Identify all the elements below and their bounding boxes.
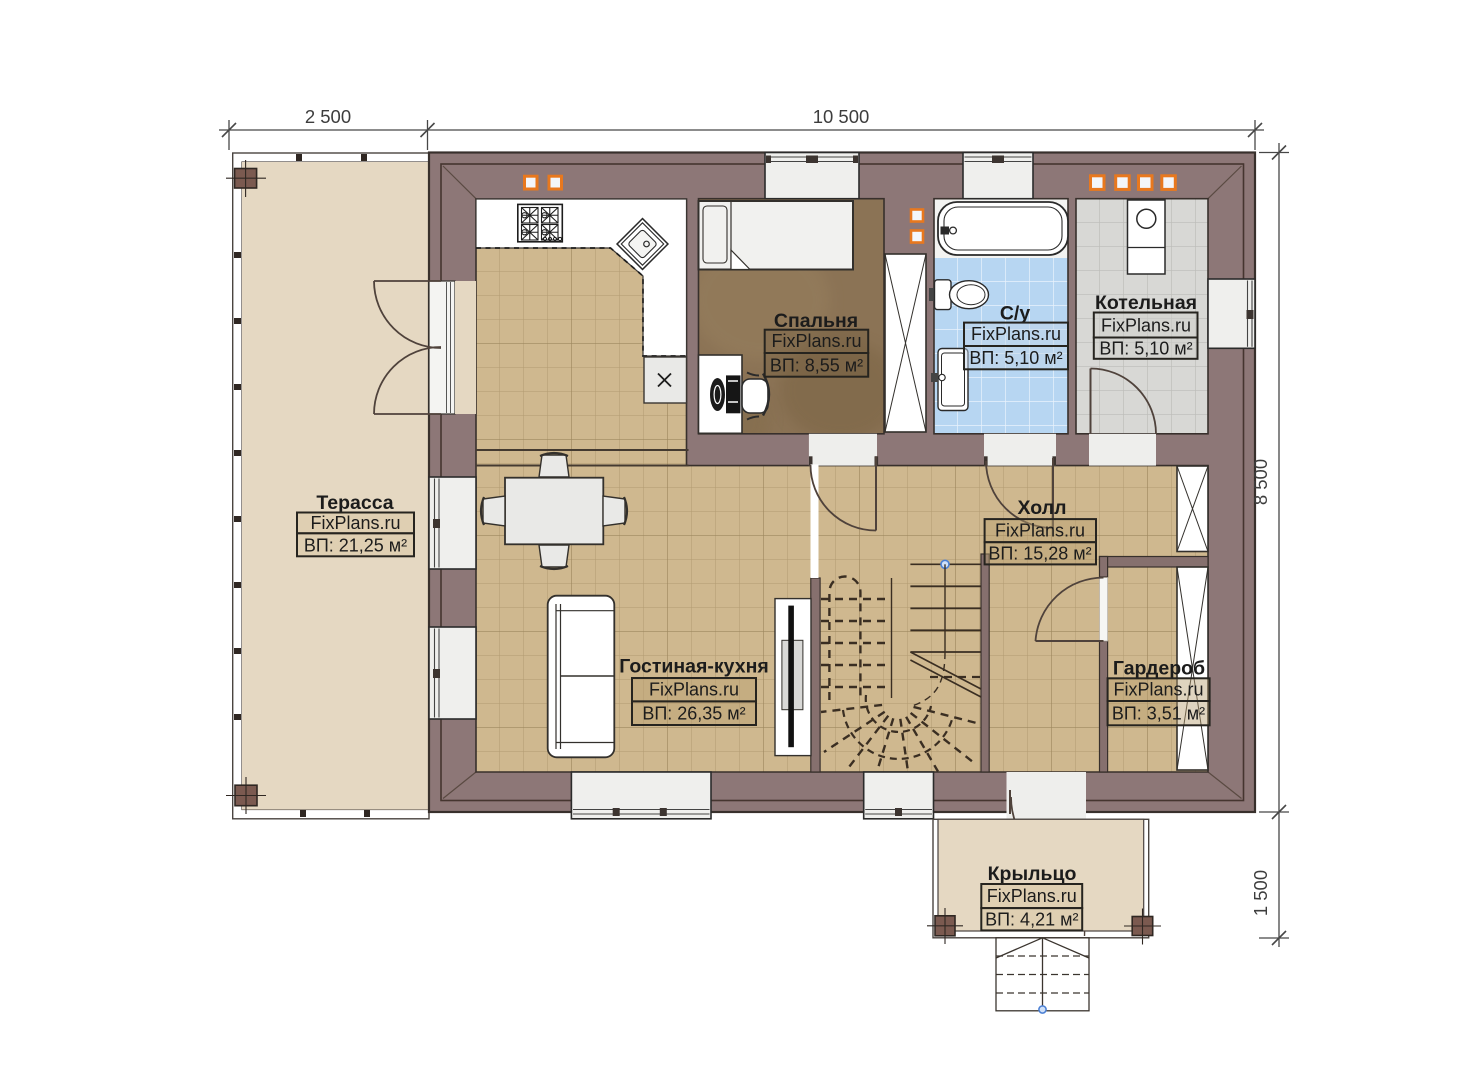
- svg-text:ВП: 21,25 м²: ВП: 21,25 м²: [304, 536, 407, 556]
- svg-text:FixPlans.ru: FixPlans.ru: [771, 331, 861, 351]
- svg-text:Котельная: Котельная: [1095, 292, 1197, 314]
- svg-text:Холл: Холл: [1018, 497, 1067, 519]
- svg-text:1 500: 1 500: [1250, 870, 1271, 916]
- svg-text:Крыльцо: Крыльцо: [988, 863, 1077, 885]
- svg-text:FixPlans.ru: FixPlans.ru: [649, 680, 739, 700]
- svg-text:10 500: 10 500: [813, 106, 870, 127]
- svg-text:ВП: 3,51 м²: ВП: 3,51 м²: [1112, 704, 1205, 724]
- svg-text:FixPlans.ru: FixPlans.ru: [987, 886, 1077, 906]
- svg-text:FixPlans.ru: FixPlans.ru: [971, 324, 1061, 344]
- svg-text:FixPlans.ru: FixPlans.ru: [1113, 680, 1203, 700]
- svg-text:С/у: С/у: [1000, 303, 1031, 325]
- svg-text:ВП: 5,10 м²: ВП: 5,10 м²: [969, 348, 1062, 368]
- svg-text:ВП: 5,10 м²: ВП: 5,10 м²: [1099, 339, 1192, 359]
- svg-text:ВП: 26,35 м²: ВП: 26,35 м²: [642, 704, 745, 724]
- svg-text:ВП: 15,28 м²: ВП: 15,28 м²: [988, 544, 1091, 564]
- svg-text:Гардероб: Гардероб: [1113, 658, 1205, 680]
- svg-text:Гостиная-кухня: Гостиная-кухня: [619, 656, 768, 678]
- svg-text:FixPlans.ru: FixPlans.ru: [995, 521, 1085, 541]
- svg-text:8 500: 8 500: [1250, 459, 1271, 505]
- svg-text:ВП: 4,21 м²: ВП: 4,21 м²: [985, 910, 1078, 930]
- svg-text:2 500: 2 500: [305, 106, 351, 127]
- svg-text:ВП: 8,55 м²: ВП: 8,55 м²: [770, 356, 863, 376]
- svg-text:FixPlans.ru: FixPlans.ru: [310, 513, 400, 533]
- svg-text:FixPlans.ru: FixPlans.ru: [1101, 316, 1191, 336]
- svg-text:Терасса: Терасса: [316, 492, 393, 514]
